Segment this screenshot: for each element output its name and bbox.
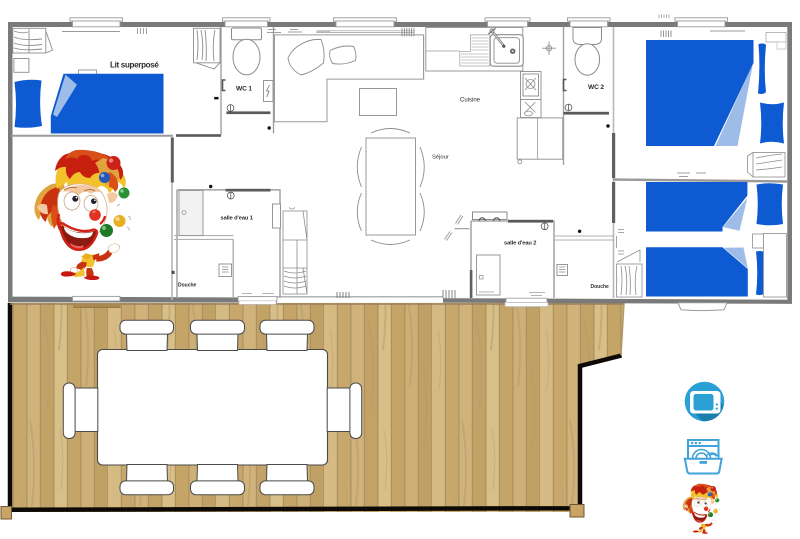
svg-text:Douche: Douche xyxy=(178,283,197,289)
svg-text:WC 2: WC 2 xyxy=(588,84,604,91)
svg-text:Cuisine: Cuisine xyxy=(460,98,481,104)
svg-text:salle d'eau 2: salle d'eau 2 xyxy=(504,241,536,247)
svg-text:salle d'eau 1: salle d'eau 1 xyxy=(221,216,253,222)
svg-text:Douche: Douche xyxy=(591,284,610,290)
svg-text:Séjour: Séjour xyxy=(432,155,449,161)
svg-text:WC 1: WC 1 xyxy=(236,86,252,93)
svg-text:Lit superposé: Lit superposé xyxy=(110,61,159,70)
